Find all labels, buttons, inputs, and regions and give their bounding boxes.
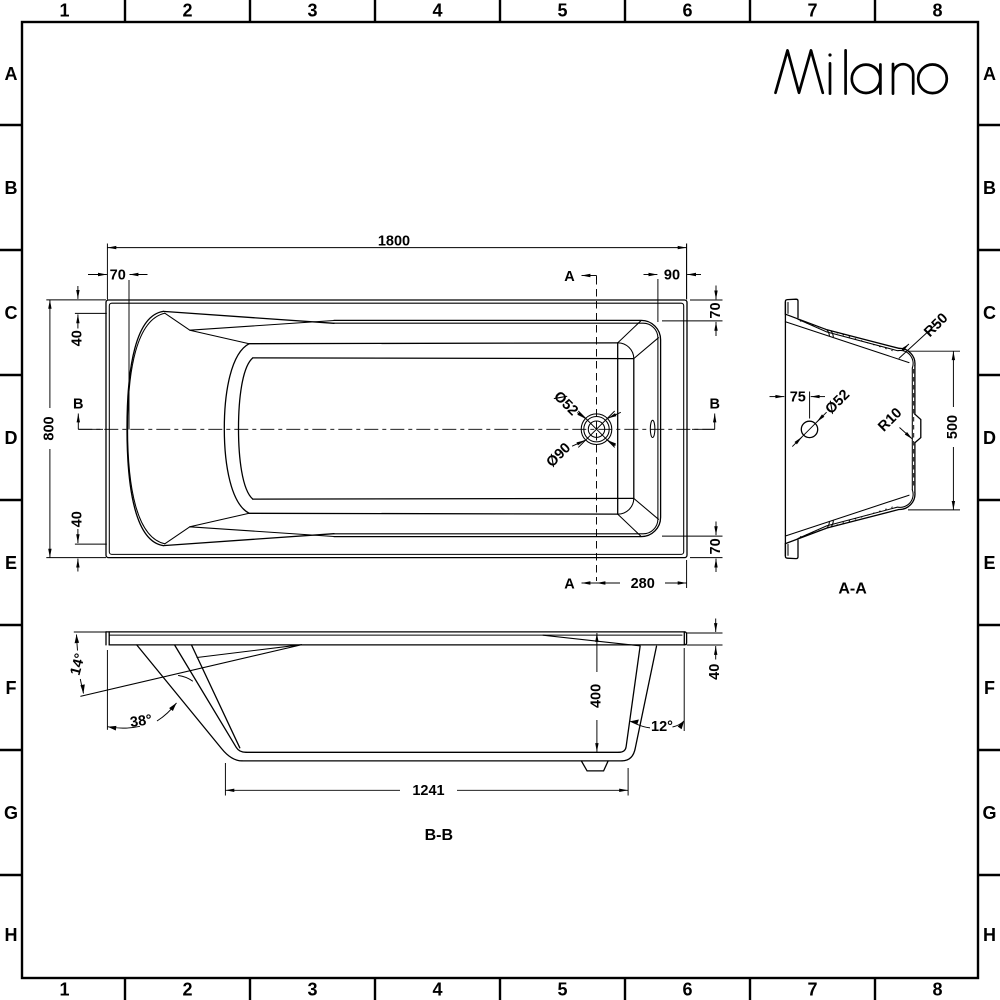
svg-text:E: E xyxy=(5,553,17,573)
svg-text:E: E xyxy=(983,553,995,573)
svg-text:500: 500 xyxy=(945,415,961,439)
svg-text:8: 8 xyxy=(932,1,942,21)
svg-text:4: 4 xyxy=(432,1,442,21)
svg-text:B: B xyxy=(73,397,83,413)
svg-text:6: 6 xyxy=(682,980,692,1000)
svg-text:B: B xyxy=(5,178,18,198)
svg-text:H: H xyxy=(983,925,996,945)
svg-text:7: 7 xyxy=(807,980,817,1000)
svg-text:40: 40 xyxy=(707,664,723,680)
svg-text:H: H xyxy=(5,925,18,945)
svg-text:40: 40 xyxy=(70,511,86,527)
svg-text:2: 2 xyxy=(182,980,192,1000)
svg-text:70: 70 xyxy=(708,302,724,318)
svg-text:1800: 1800 xyxy=(378,233,410,249)
svg-text:4: 4 xyxy=(432,980,442,1000)
svg-text:38°: 38° xyxy=(129,712,153,731)
svg-text:D: D xyxy=(5,428,18,448)
svg-text:F: F xyxy=(6,678,17,698)
svg-text:3: 3 xyxy=(307,980,317,1000)
svg-text:800: 800 xyxy=(42,416,58,440)
svg-text:70: 70 xyxy=(110,268,126,284)
svg-text:A-A: A-A xyxy=(838,581,867,598)
svg-text:12°: 12° xyxy=(651,719,673,735)
svg-text:B: B xyxy=(709,397,719,413)
svg-text:G: G xyxy=(4,803,18,823)
svg-text:5: 5 xyxy=(557,1,567,21)
svg-text:2: 2 xyxy=(182,1,192,21)
svg-text:A: A xyxy=(564,577,575,593)
svg-text:7: 7 xyxy=(807,1,817,21)
svg-text:G: G xyxy=(982,803,996,823)
svg-text:1: 1 xyxy=(59,980,69,1000)
svg-text:A: A xyxy=(564,269,575,285)
svg-text:6: 6 xyxy=(682,1,692,21)
svg-text:280: 280 xyxy=(631,576,655,592)
svg-text:400: 400 xyxy=(589,684,605,708)
svg-text:C: C xyxy=(983,303,996,323)
svg-text:1241: 1241 xyxy=(412,783,444,799)
svg-text:D: D xyxy=(983,428,996,448)
svg-text:A: A xyxy=(5,64,18,84)
svg-text:B: B xyxy=(983,178,996,198)
svg-text:C: C xyxy=(5,303,18,323)
svg-text:90: 90 xyxy=(664,268,680,284)
svg-text:75: 75 xyxy=(790,390,806,406)
svg-text:70: 70 xyxy=(708,538,724,554)
svg-text:8: 8 xyxy=(932,980,942,1000)
svg-text:3: 3 xyxy=(307,1,317,21)
svg-text:A: A xyxy=(983,64,996,84)
svg-text:B-B: B-B xyxy=(425,827,453,844)
svg-text:40: 40 xyxy=(70,330,86,346)
svg-text:5: 5 xyxy=(557,980,567,1000)
svg-text:1: 1 xyxy=(59,1,69,21)
svg-text:F: F xyxy=(984,678,995,698)
